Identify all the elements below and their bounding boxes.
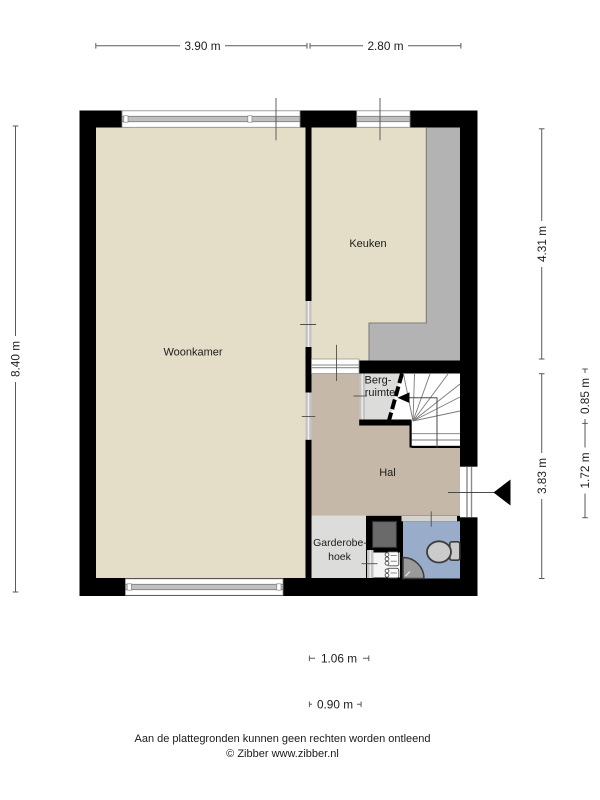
svg-text:Hal: Hal [379,467,396,479]
svg-text:Garderobe-: Garderobe- [313,537,367,549]
svg-text:Aan de plattegronden kunnen ge: Aan de plattegronden kunnen geen rechten… [134,733,430,745]
svg-text:Berg-: Berg- [365,375,392,387]
svg-text:3.83 m: 3.83 m [535,458,549,494]
svg-text:ruimte: ruimte [365,387,396,399]
svg-text:3.90 m: 3.90 m [184,39,220,53]
svg-text:© Zibber www.zibber.nl: © Zibber www.zibber.nl [226,748,339,760]
svg-text:4.31 m: 4.31 m [535,226,549,262]
svg-text:Woonkamer: Woonkamer [163,347,222,359]
svg-text:2.80 m: 2.80 m [367,39,403,53]
svg-text:8.40 m: 8.40 m [9,341,23,377]
svg-text:0.85 m: 0.85 m [578,378,592,414]
svg-text:0.90 m: 0.90 m [317,698,353,712]
svg-text:Keuken: Keuken [349,238,386,250]
svg-text:hoek: hoek [328,551,352,563]
svg-text:1.72 m: 1.72 m [578,452,592,488]
svg-text:1.06 m: 1.06 m [321,652,357,666]
